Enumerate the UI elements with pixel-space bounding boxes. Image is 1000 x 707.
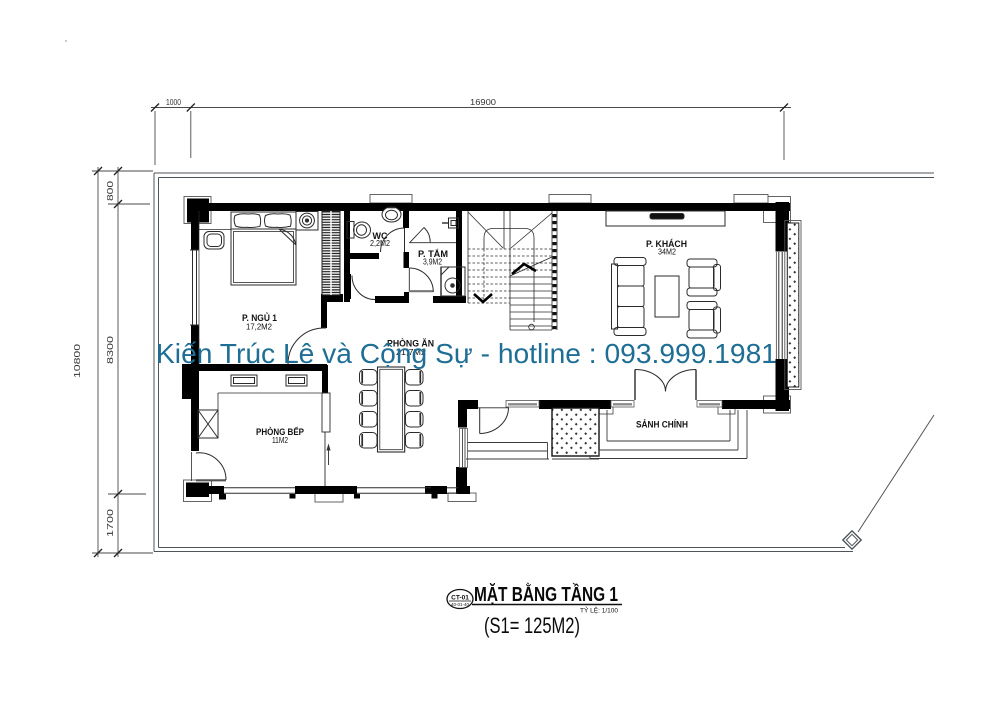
svg-text:1700: 1700 <box>106 508 115 537</box>
svg-text:3,9M2: 3,9M2 <box>423 258 442 267</box>
svg-text:SẢNH CHÍNH: SẢNH CHÍNH <box>636 419 688 431</box>
svg-text:1000: 1000 <box>166 98 181 107</box>
svg-text:(S1= 125M2): (S1= 125M2) <box>484 613 580 638</box>
svg-text:2,2M2: 2,2M2 <box>370 239 390 248</box>
svg-text:16900: 16900 <box>470 98 497 107</box>
svg-text:CT-01: CT-01 <box>451 595 469 602</box>
svg-text:TỶ LỆ: 1/100: TỶ LỆ: 1/100 <box>580 606 618 615</box>
svg-text:17,2M2: 17,2M2 <box>246 323 273 332</box>
svg-text:34M2: 34M2 <box>658 248 676 257</box>
svg-text:11M2: 11M2 <box>272 436 288 445</box>
svg-text:8300: 8300 <box>106 335 115 364</box>
svg-text:10800: 10800 <box>73 343 82 378</box>
svg-text:40-01-40: 40-01-40 <box>451 602 470 607</box>
svg-text:Kiến Trúc Lê và Cộng Sự - hotl: Kiến Trúc Lê và Cộng Sự - hotline : 093.… <box>156 338 777 369</box>
svg-text:MẶT BẰNG TẦNG 1: MẶT BẰNG TẦNG 1 <box>474 582 618 606</box>
svg-text:800: 800 <box>106 180 115 201</box>
